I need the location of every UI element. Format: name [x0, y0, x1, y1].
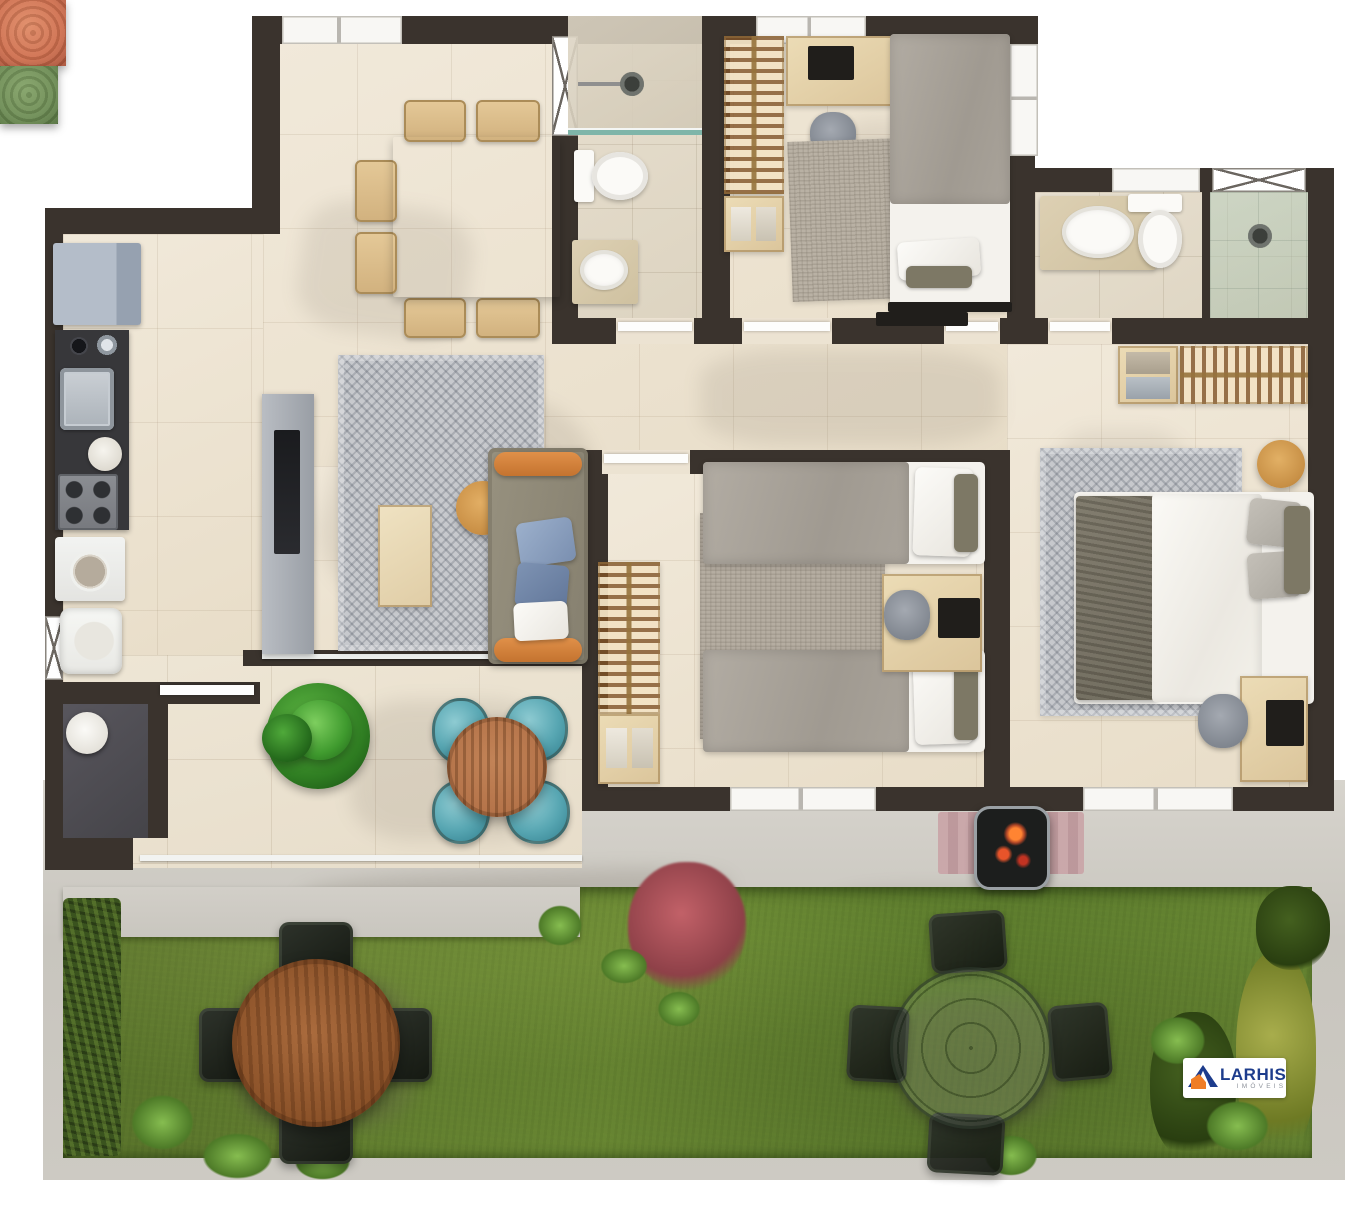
- side-table-master: [1257, 440, 1305, 488]
- floor-plan-scene: LARHIS IMÓVEIS: [0, 0, 1366, 1209]
- toilet-2-bowl: [1138, 210, 1182, 268]
- wardrobe-bed2: [598, 562, 660, 714]
- wc-sink: [66, 712, 108, 754]
- wardrobe-bed1: [724, 36, 784, 194]
- tv-bed1: [876, 312, 968, 326]
- terrace-glass-railing: [140, 855, 582, 861]
- window-dining-top: [282, 16, 402, 44]
- window-bed1-right: [1010, 44, 1038, 156]
- wall-kitchen-top: [45, 208, 280, 234]
- door-threshold-bath1: [618, 322, 692, 331]
- dining-chair: [355, 232, 397, 294]
- desk-chair-bed2: [884, 590, 930, 640]
- shelf-bed2: [598, 714, 660, 784]
- washing-machine: [55, 537, 125, 601]
- toilet-1-bowl: [592, 152, 648, 200]
- house-body-shape: [1191, 1074, 1206, 1089]
- glass-set-chair-north: [928, 909, 1008, 974]
- wall-dining-left: [252, 16, 280, 234]
- bed1-cushion: [906, 266, 972, 288]
- dining-chair: [476, 298, 540, 338]
- window-suite-bath: [1112, 168, 1200, 192]
- cooktop: [58, 474, 118, 530]
- bbq-grill: [974, 806, 1050, 890]
- window-bed2-bottom: [730, 787, 876, 811]
- green-pouf: [0, 66, 58, 124]
- brand-name: LARHIS: [1220, 1066, 1286, 1083]
- terrace-wood-table: [447, 717, 547, 817]
- shower-arm: [578, 82, 626, 86]
- toilet-1-tank: [574, 150, 594, 202]
- shower-head-1: [620, 72, 644, 96]
- fridge: [53, 243, 141, 325]
- glass-set-chair-east: [1047, 1002, 1113, 1083]
- sofa-bolster: [494, 452, 582, 476]
- sofa-pillow-blue: [515, 516, 577, 567]
- brand-tagline: IMÓVEIS: [1220, 1084, 1286, 1091]
- house-logo-icon: [1188, 1065, 1218, 1091]
- dining-table: [393, 137, 560, 297]
- tv-living: [274, 430, 300, 554]
- x-window-shower-2: [1212, 168, 1306, 192]
- laundry-tank: [60, 608, 122, 674]
- sink-2: [1062, 206, 1134, 258]
- sink-1: [580, 250, 628, 290]
- shower-zone-2: [1210, 192, 1308, 318]
- bed2-b-cushion: [954, 662, 978, 740]
- coffee-bench: [378, 505, 432, 607]
- floor-shadow: [700, 350, 1000, 445]
- wall-corner-bottom-left: [45, 838, 133, 870]
- dining-chair: [404, 298, 466, 338]
- fern: [650, 985, 708, 1033]
- bed2-b-duvet: [703, 650, 909, 752]
- bed2-a-cushion: [954, 474, 978, 552]
- door-threshold-bed1: [744, 322, 830, 331]
- kitchen-bowl: [88, 437, 122, 471]
- dining-chair: [404, 100, 466, 142]
- bed1-headboard: [888, 302, 1012, 312]
- dining-chair: [355, 160, 397, 222]
- brand-logo: LARHIS IMÓVEIS: [1183, 1058, 1286, 1098]
- hedge-left: [63, 898, 121, 1156]
- terrace-plant-leaves: [262, 714, 312, 762]
- wardrobe-master-baskets: [1118, 346, 1178, 404]
- fern: [190, 1125, 285, 1187]
- bush-dark: [1256, 886, 1330, 970]
- dining-chair: [476, 100, 540, 142]
- window-master-bottom: [1083, 787, 1233, 811]
- shower-head-2: [1248, 224, 1272, 248]
- bed1-duvet: [890, 34, 1010, 204]
- sofa-pillow-cream: [513, 601, 569, 642]
- desk-chair-master: [1198, 694, 1248, 748]
- wardrobe-master-rail: [1180, 346, 1308, 404]
- bed-master-duvet: [1152, 494, 1262, 702]
- fern: [530, 898, 590, 953]
- sofa-bolster: [494, 638, 582, 662]
- door-threshold-laundry: [160, 685, 254, 695]
- door-threshold-bed2: [604, 454, 688, 463]
- laptop-master: [1266, 700, 1304, 746]
- bed-master-cushion: [1284, 506, 1310, 594]
- orange-pouf: [0, 0, 66, 66]
- shower-2-divider: [1202, 192, 1210, 323]
- laptop-bed1: [808, 46, 854, 80]
- door-threshold-suite-bath: [1050, 322, 1110, 331]
- garden-wood-table: [232, 959, 400, 1127]
- kitchen-sink: [60, 368, 114, 430]
- garden-glass-table: [890, 967, 1052, 1129]
- fern: [592, 942, 656, 990]
- wall-bed2-right: [984, 450, 1010, 811]
- shower-glass-1: [568, 130, 702, 135]
- laptop-bed2: [938, 598, 980, 638]
- fern: [1195, 1092, 1280, 1160]
- shelf-bed1: [724, 196, 784, 252]
- bed-master-throw: [1076, 496, 1158, 700]
- bed2-a-duvet: [703, 462, 909, 564]
- wall-wc-right: [148, 704, 168, 838]
- toilet-2-tank: [1128, 194, 1182, 212]
